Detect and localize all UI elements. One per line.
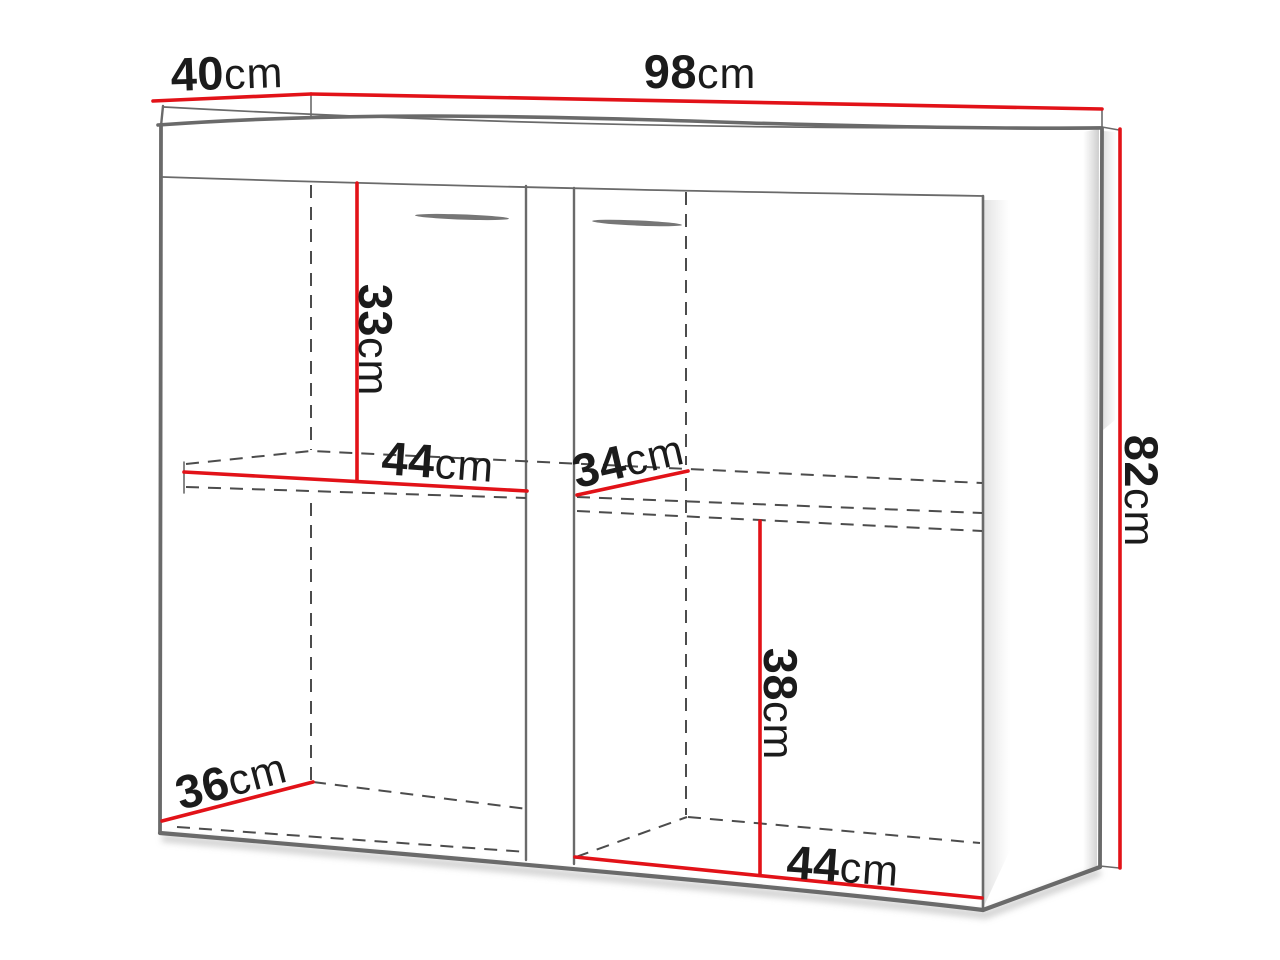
dim-label-right-bottom-width: 44cm xyxy=(785,838,901,894)
dim-unit: cm xyxy=(838,844,901,896)
hidden-dashed-edges xyxy=(177,185,982,857)
dim-unit: cm xyxy=(433,440,496,492)
dim-label-right-height: 82cm xyxy=(1117,435,1165,548)
dim-unit: cm xyxy=(1115,488,1163,547)
dim-unit: cm xyxy=(754,701,802,760)
dim-label-left-shelf-width: 44cm xyxy=(380,434,496,490)
dim-unit: cm xyxy=(349,337,397,396)
dimension-lines xyxy=(153,94,1120,898)
right-outer-drop-shade xyxy=(1103,131,1117,430)
left-door-handle xyxy=(415,213,509,221)
dim-unit: cm xyxy=(223,49,284,99)
solid-edges xyxy=(158,96,1119,910)
dim-label-top-width: 98cm xyxy=(644,48,757,96)
dim-value: 40 xyxy=(170,46,225,101)
dim-label-right-lower-height: 38cm xyxy=(756,648,804,761)
right-panel-back-shade xyxy=(984,200,1010,906)
dim-unit: cm xyxy=(697,50,756,98)
door-handles xyxy=(415,213,682,228)
dim-value: 44 xyxy=(785,835,842,892)
dim-label-top-depth: 40cm xyxy=(170,47,284,99)
dim-value: 82 xyxy=(1115,435,1168,488)
right-panel-inner-shade xyxy=(1083,129,1099,871)
dim-label-left-upper-height: 33cm xyxy=(351,284,399,397)
dim-value: 44 xyxy=(380,431,437,488)
shadows xyxy=(162,129,1117,915)
furniture-dimension-diagram: 40cm 98cm 82cm 33cm 44cm 34cm 38cm 44cm … xyxy=(0,0,1280,960)
dim-value: 98 xyxy=(644,45,697,98)
dim-value: 38 xyxy=(754,648,807,701)
dim-value: 33 xyxy=(349,284,402,337)
right-door-handle xyxy=(592,218,682,227)
